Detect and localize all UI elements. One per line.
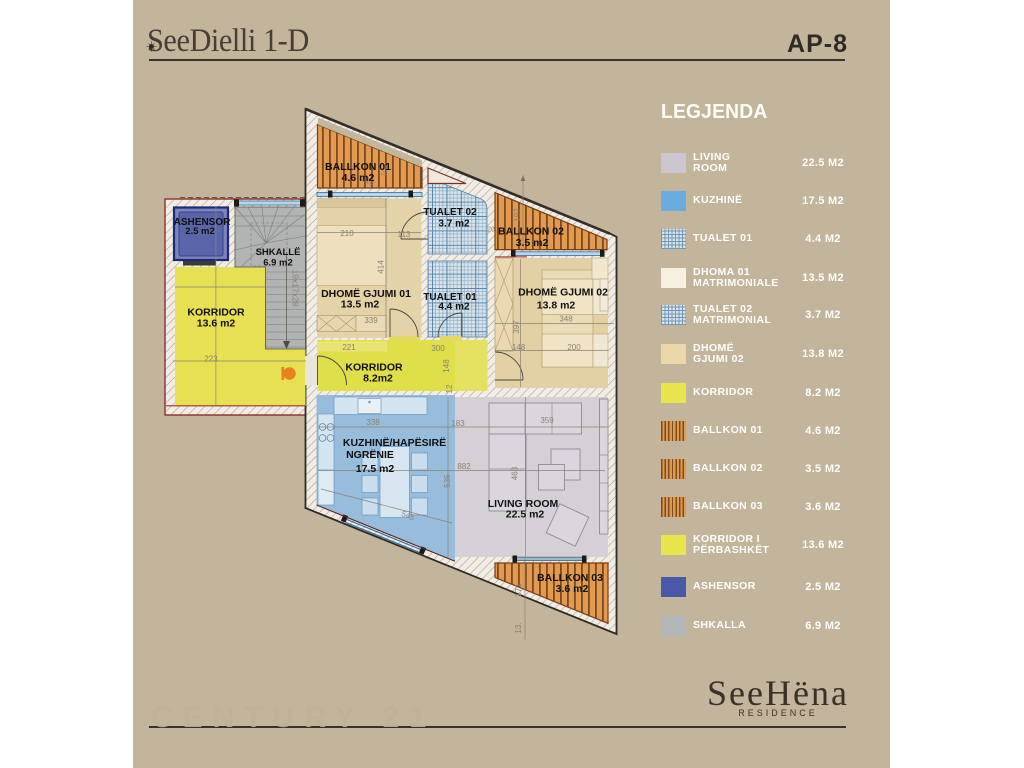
svg-text:338: 338 [366,418,380,427]
svg-text:TUALET 02: TUALET 02 [423,207,477,218]
svg-text:113: 113 [398,230,411,239]
svg-text:8.2m2: 8.2m2 [363,373,393,385]
svg-text:19x17x28: 19x17x28 [291,270,301,307]
svg-text:535: 535 [443,474,452,488]
svg-text:13.: 13. [514,622,523,633]
svg-text:3.6 m2: 3.6 m2 [556,583,589,595]
svg-text:22.5 m2: 22.5 m2 [506,509,545,521]
svg-text:221: 221 [342,343,356,352]
svg-text:148: 148 [442,359,451,373]
svg-text:2.5 m2: 2.5 m2 [185,226,215,237]
svg-text:300: 300 [431,344,445,353]
svg-text:4.4 m2: 4.4 m2 [438,302,470,313]
svg-text:414: 414 [377,260,386,274]
svg-text:197: 197 [513,208,522,222]
svg-text:DHOMË GJUMI 02: DHOMË GJUMI 02 [518,286,608,299]
svg-text:3.5 m2: 3.5 m2 [516,237,549,249]
svg-text:KUZHINË/HAPËSIRË: KUZHINË/HAPËSIRË [343,436,446,449]
svg-text:17.5 m2: 17.5 m2 [356,463,395,475]
svg-text:348: 348 [559,315,573,324]
svg-text:3.7 m2: 3.7 m2 [438,219,470,230]
svg-text:397: 397 [512,320,521,334]
svg-text:148: 148 [512,343,526,352]
svg-text:463: 463 [511,466,520,480]
svg-text:183: 183 [451,419,465,428]
svg-text:NGRËNIE: NGRËNIE [346,448,394,461]
svg-text:223: 223 [204,355,218,364]
svg-text:20: 20 [487,227,495,234]
svg-text:359: 359 [540,416,554,425]
svg-text:13.5 m2: 13.5 m2 [341,299,380,311]
svg-text:SHKALLË: SHKALLË [256,247,301,258]
svg-text:339: 339 [364,316,378,325]
svg-text:210: 210 [340,229,354,238]
svg-text:200: 200 [567,343,581,352]
svg-text:4.6 m2: 4.6 m2 [342,172,375,184]
svg-text:13.8 m2: 13.8 m2 [537,300,576,312]
svg-text:BALLKON 02: BALLKON 02 [498,226,564,238]
svg-text:882: 882 [457,462,471,471]
svg-text:12: 12 [445,384,454,393]
svg-text:6.9 m2: 6.9 m2 [263,258,293,269]
svg-text:13.6 m2: 13.6 m2 [197,318,236,330]
svg-text:171: 171 [514,583,523,597]
